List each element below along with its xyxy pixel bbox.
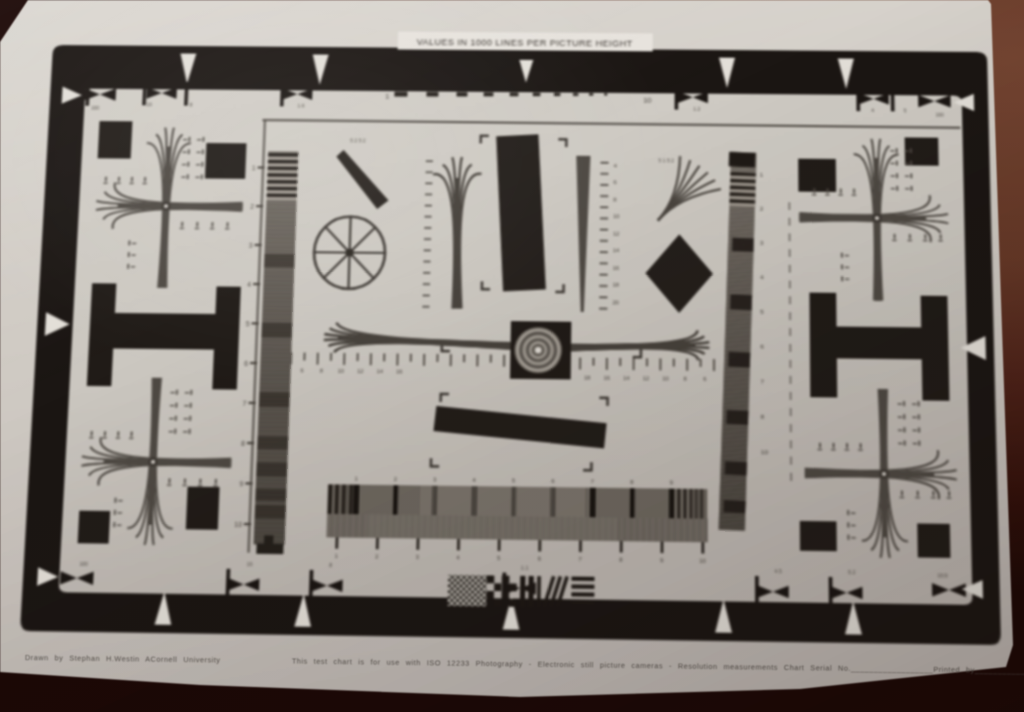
svg-text:4.5: 4.5 [774, 569, 782, 576]
svg-text:8: 8 [613, 198, 616, 204]
svg-text:9: 9 [660, 558, 663, 564]
svg-text:VALUES IN 1000 LINES PER PICTU: VALUES IN 1000 LINES PER PICTURE HEIGHT [417, 37, 633, 48]
svg-text:5: 5 [904, 108, 907, 114]
svg-text:6: 6 [613, 181, 616, 187]
svg-text:8: 8 [329, 563, 332, 569]
svg-text:5: 5 [497, 556, 500, 562]
svg-text:1.2: 1.2 [693, 107, 700, 113]
svg-text:8: 8 [619, 557, 622, 563]
svg-text:18: 18 [584, 375, 590, 381]
svg-text:2: 2 [394, 477, 397, 483]
svg-text:14: 14 [623, 376, 629, 382]
svg-text:4: 4 [871, 108, 874, 114]
svg-text:10: 10 [699, 559, 705, 566]
svg-text:100: 100 [91, 106, 100, 112]
svg-text:10: 10 [662, 376, 668, 382]
svg-text:7: 7 [591, 479, 594, 485]
svg-text:6: 6 [538, 556, 541, 562]
svg-text:100: 100 [935, 113, 944, 119]
svg-text:1: 1 [385, 94, 389, 101]
svg-text:14: 14 [613, 249, 619, 255]
svg-text:5 1 5 2: 5 1 5 2 [659, 158, 675, 164]
svg-text:16: 16 [396, 369, 402, 375]
svg-text:4: 4 [614, 164, 617, 170]
svg-text:100: 100 [79, 562, 88, 569]
svg-text:18: 18 [613, 283, 619, 289]
svg-text:3: 3 [416, 555, 419, 561]
svg-text:10: 10 [338, 369, 344, 375]
svg-text:8: 8 [684, 377, 687, 383]
svg-text:5.2: 5.2 [848, 570, 856, 577]
svg-text:16: 16 [247, 562, 253, 568]
svg-text:2: 2 [375, 554, 378, 560]
svg-text:5: 5 [512, 478, 515, 484]
svg-text:20: 20 [612, 300, 618, 306]
svg-text:8: 8 [630, 480, 633, 486]
svg-text:1.1: 1.1 [521, 565, 529, 572]
svg-text:6: 6 [300, 368, 303, 374]
svg-text:12: 12 [613, 232, 619, 238]
svg-text:16: 16 [604, 376, 610, 382]
svg-text:16: 16 [146, 102, 152, 108]
svg-text:14: 14 [377, 369, 383, 375]
svg-text:1: 1 [334, 554, 337, 560]
svg-text:9: 9 [670, 480, 673, 486]
svg-text:10: 10 [234, 522, 242, 530]
svg-text:8: 8 [320, 368, 323, 374]
svg-text:16:9: 16:9 [937, 573, 948, 580]
svg-text:1.6: 1.6 [297, 104, 304, 110]
svg-text:10: 10 [643, 98, 651, 105]
svg-text:4: 4 [472, 478, 475, 484]
svg-text:10: 10 [613, 215, 619, 221]
svg-text:12: 12 [357, 369, 363, 375]
svg-text:6: 6 [703, 377, 706, 383]
svg-text:12: 12 [643, 376, 649, 382]
svg-text:1: 1 [354, 476, 357, 482]
svg-text:16: 16 [613, 266, 619, 272]
svg-text:3: 3 [433, 477, 436, 483]
svg-text:6: 6 [551, 479, 554, 485]
svg-text:10: 10 [761, 450, 769, 456]
svg-text:5 2 5 2: 5 2 5 2 [350, 138, 366, 144]
svg-text:7: 7 [578, 557, 581, 563]
svg-text:4: 4 [456, 555, 459, 561]
